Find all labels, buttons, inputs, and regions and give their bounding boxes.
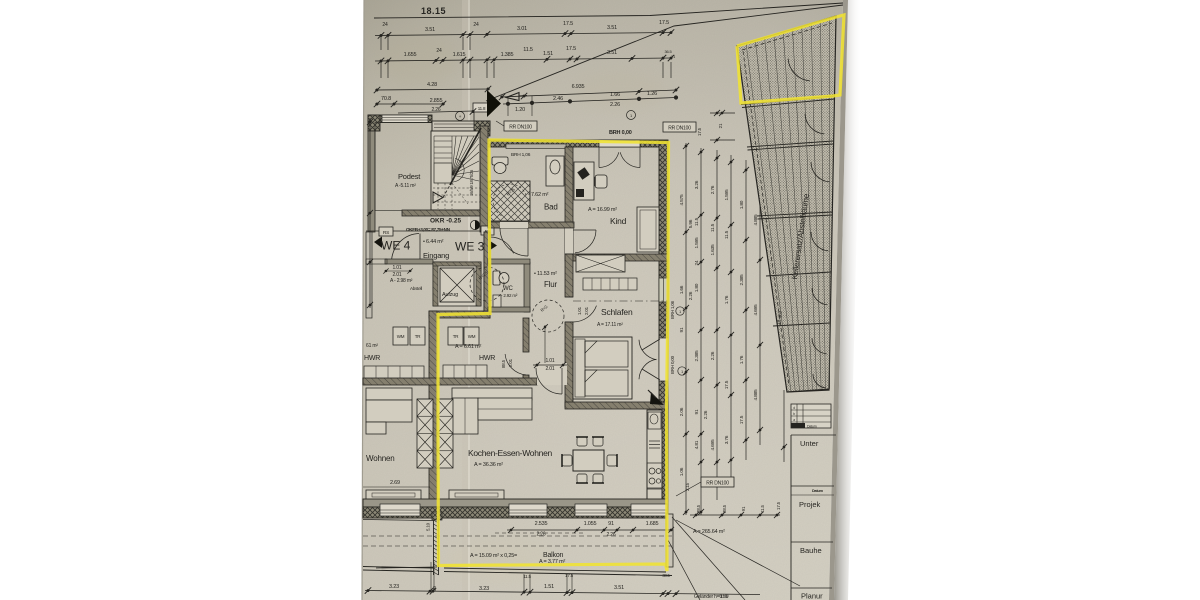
svg-text:2.855: 2.855 <box>430 98 443 104</box>
svg-text:Abstell: Abstell <box>410 286 422 291</box>
svg-text:HWR: HWR <box>479 355 495 362</box>
svg-text:A = 15.09 m² x 0,25=: A = 15.09 m² x 0,25= <box>470 553 517 559</box>
svg-text:91: 91 <box>694 409 700 414</box>
svg-text:• 11.53 m²: • 11.53 m² <box>534 271 557 277</box>
svg-text:TR: TR <box>453 334 460 339</box>
svg-text:1.20: 1.20 <box>515 107 525 113</box>
svg-text:2.26: 2.26 <box>432 107 441 113</box>
svg-text:2.26: 2.26 <box>688 291 694 300</box>
svg-text:88.5: 88.5 <box>501 359 506 368</box>
svg-text:3.23: 3.23 <box>479 586 489 592</box>
svg-text:1.635: 1.635 <box>710 244 716 256</box>
svg-text:A = 265.64 m²: A = 265.64 m² <box>693 529 725 535</box>
svg-text:- 7.62 m²: - 7.62 m² <box>528 192 549 198</box>
svg-text:4.81: 4.81 <box>694 440 700 449</box>
svg-text:30: 30 <box>432 586 437 591</box>
svg-text:1.80: 1.80 <box>694 283 700 292</box>
svg-text:17.5: 17.5 <box>566 46 576 52</box>
svg-text:Balkon: Balkon <box>543 552 564 559</box>
svg-text:1.66: 1.66 <box>679 285 685 294</box>
svg-text:38.5: 38.5 <box>722 504 727 513</box>
svg-text:24: 24 <box>694 260 700 265</box>
svg-text:A = 36.36 m²: A = 36.36 m² <box>474 462 503 468</box>
svg-text:4.575: 4.575 <box>679 194 685 206</box>
svg-text:1.01: 1.01 <box>546 358 555 364</box>
svg-text:17.5: 17.5 <box>739 415 745 424</box>
svg-text:38.5: 38.5 <box>696 504 701 513</box>
svg-text:Flur: Flur <box>544 280 558 289</box>
svg-text:2.26: 2.26 <box>537 532 546 538</box>
svg-text:Unter: Unter <box>800 439 819 448</box>
svg-text:4.695: 4.695 <box>710 439 716 451</box>
svg-text:1.615: 1.615 <box>453 52 466 58</box>
svg-text:2.01: 2.01 <box>584 306 589 315</box>
svg-text:BRH 0,00: BRH 0,00 <box>609 130 632 136</box>
svg-text:3.76: 3.76 <box>724 435 730 444</box>
svg-text:BRH 1,06: BRH 1,06 <box>670 300 675 319</box>
svg-text:RS: RS <box>383 230 389 236</box>
svg-text:WE 4: WE 4 <box>381 239 411 253</box>
svg-text:11.5: 11.5 <box>724 230 730 239</box>
svg-text:1.26: 1.26 <box>647 91 657 97</box>
svg-text:1.595: 1.595 <box>694 237 700 249</box>
svg-text:RR DN100: RR DN100 <box>509 125 532 131</box>
svg-text:1.76: 1.76 <box>739 355 745 364</box>
svg-text:WM: WM <box>468 334 476 339</box>
svg-text:70.8: 70.8 <box>381 96 391 102</box>
svg-text:WM: WM <box>397 334 405 339</box>
svg-text:6.935: 6.935 <box>572 84 585 90</box>
svg-text:91: 91 <box>741 506 746 511</box>
svg-text:BRH 0,00: BRH 0,00 <box>670 355 675 374</box>
svg-text:11.5: 11.5 <box>760 504 765 512</box>
svg-text:3.51: 3.51 <box>607 25 617 31</box>
svg-text:1.06: 1.06 <box>679 467 685 476</box>
svg-text:Bauhe: Bauhe <box>800 546 822 555</box>
svg-text:5.10: 5.10 <box>426 522 431 531</box>
svg-text:2.26: 2.26 <box>610 102 620 108</box>
svg-text:A - 2.98 m²: A - 2.98 m² <box>390 278 413 284</box>
svg-text:91: 91 <box>608 521 614 527</box>
svg-text:WC: WC <box>503 286 513 292</box>
svg-text:38.5: 38.5 <box>662 573 670 578</box>
svg-text:HWR: HWR <box>364 355 380 362</box>
svg-text:Wohnen: Wohnen <box>366 454 394 463</box>
svg-text:5.96: 5.96 <box>688 219 694 228</box>
svg-text:2.01: 2.01 <box>546 366 555 372</box>
svg-text:21: 21 <box>718 123 723 128</box>
svg-text:3.51: 3.51 <box>425 27 435 33</box>
svg-text:18.15: 18.15 <box>421 6 446 16</box>
svg-text:24: 24 <box>473 22 479 28</box>
svg-text:A = 16.99 m²: A = 16.99 m² <box>588 207 617 213</box>
svg-text:OKFB+3,00= 87,75+NN: OKFB+3,00= 87,75+NN <box>406 227 451 232</box>
svg-text:Eingang: Eingang <box>423 251 449 260</box>
svg-text:3.51: 3.51 <box>614 585 624 591</box>
svg-text:11.5: 11.5 <box>710 223 716 232</box>
svg-text:11.5: 11.5 <box>523 47 533 53</box>
svg-text:3.51: 3.51 <box>607 50 617 56</box>
svg-text:Aufzug: Aufzug <box>442 292 458 298</box>
svg-text:61 m²: 61 m² <box>366 343 378 349</box>
svg-text:24: 24 <box>382 22 388 28</box>
svg-text:Planur: Planur <box>801 592 823 600</box>
svg-text:Kochen-Essen-Wohnen: Kochen-Essen-Wohnen <box>468 448 552 458</box>
svg-text:Projek: Projek <box>799 500 821 509</box>
svg-text:2.385: 2.385 <box>694 350 700 362</box>
svg-text:11.5: 11.5 <box>694 217 700 226</box>
svg-text:1.80: 1.80 <box>739 200 745 209</box>
svg-text:BRH 1,06: BRH 1,06 <box>511 152 531 158</box>
svg-text:1.385: 1.385 <box>501 52 514 58</box>
svg-text:17.5: 17.5 <box>565 573 574 578</box>
svg-text:• 6.44 m²: • 6.44 m² <box>423 239 444 245</box>
svg-text:1.055: 1.055 <box>584 521 597 527</box>
svg-text:A -5.11 m²: A -5.11 m² <box>395 183 416 189</box>
svg-text:A = 17.11 m²: A = 17.11 m² <box>597 322 623 328</box>
svg-text:A = 6.61 m²: A = 6.61 m² <box>455 344 481 350</box>
svg-text:Bad: Bad <box>544 203 558 212</box>
svg-text:1.685: 1.685 <box>646 521 659 527</box>
svg-text:2.15: 2.15 <box>685 482 690 491</box>
svg-text:2.76: 2.76 <box>710 185 716 194</box>
svg-text:Datum: Datum <box>812 489 824 493</box>
svg-text:11.8: 11.8 <box>478 106 486 111</box>
svg-text:2.69: 2.69 <box>390 480 400 486</box>
svg-text:1.595: 1.595 <box>724 189 730 201</box>
svg-text:- 2.92 m²: - 2.92 m² <box>501 293 518 298</box>
svg-text:2.26: 2.26 <box>703 410 709 419</box>
svg-text:1.01: 1.01 <box>577 306 582 315</box>
svg-text:17.5: 17.5 <box>659 20 669 26</box>
svg-text:RR DN100: RR DN100 <box>668 126 691 132</box>
svg-text:24: 24 <box>436 48 442 54</box>
svg-text:1.76: 1.76 <box>724 295 730 304</box>
svg-text:3.01: 3.01 <box>517 26 527 32</box>
svg-text:Schlafen: Schlafen <box>601 307 633 317</box>
svg-text:2.46: 2.46 <box>553 96 563 102</box>
svg-text:2.26: 2.26 <box>710 351 716 360</box>
svg-text:4.28: 4.28 <box>427 82 437 88</box>
svg-text:2.385: 2.385 <box>739 274 745 286</box>
svg-text:17.5: 17.5 <box>776 501 781 510</box>
svg-text:2.06: 2.06 <box>679 407 685 416</box>
svg-text:Podest: Podest <box>398 172 421 181</box>
svg-text:Kind: Kind <box>610 216 627 226</box>
svg-text:TR: TR <box>415 334 422 339</box>
svg-text:2.535: 2.535 <box>535 521 548 527</box>
svg-text:OKR -0.25: OKR -0.25 <box>430 218 461 225</box>
svg-text:17.5: 17.5 <box>697 127 702 136</box>
svg-text:1.66: 1.66 <box>610 92 620 98</box>
svg-text:17.5: 17.5 <box>724 380 730 389</box>
svg-text:1.51: 1.51 <box>544 584 554 590</box>
svg-text:4.885: 4.885 <box>753 389 759 401</box>
svg-text:16/5/9 18.75/26: 16/5/9 18.75/26 <box>469 169 474 196</box>
svg-text:1.655: 1.655 <box>404 52 417 58</box>
svg-text:91: 91 <box>679 327 685 332</box>
svg-text:Datum: Datum <box>807 425 817 429</box>
svg-text:2.01: 2.01 <box>508 358 513 367</box>
svg-text:RR DN100: RR DN100 <box>706 481 729 487</box>
svg-text:1.01: 1.01 <box>393 265 402 271</box>
svg-text:2.26: 2.26 <box>607 532 616 538</box>
svg-text:17.5: 17.5 <box>563 21 573 27</box>
svg-text:1.51: 1.51 <box>543 51 553 57</box>
svg-text:3.26: 3.26 <box>694 180 700 189</box>
svg-text:WE 3: WE 3 <box>455 240 485 254</box>
svg-text:3.23: 3.23 <box>389 584 399 590</box>
svg-text:4.695: 4.695 <box>753 304 759 316</box>
